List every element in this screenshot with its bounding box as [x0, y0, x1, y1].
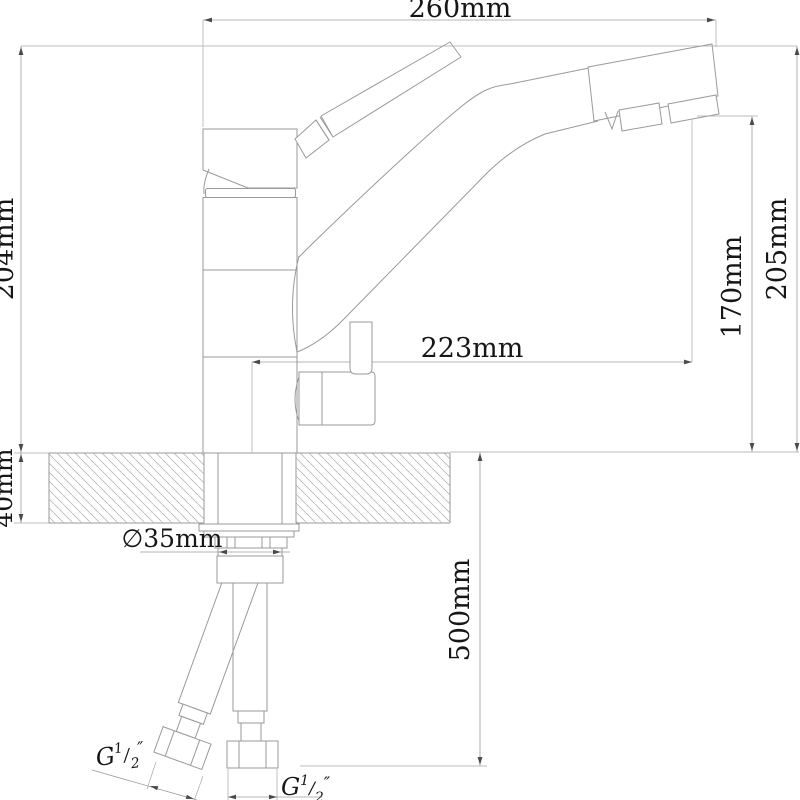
thread-left-text: G1/2″	[94, 737, 148, 777]
faucet-technical-drawing: 260mm 204mm 40mm 205mm 170mm 223mm	[0, 0, 800, 800]
filter-outlet	[295, 322, 375, 425]
hose-right-ferrule	[238, 711, 264, 723]
thread-right-text: G1/2″	[281, 773, 331, 800]
dim-label-hose-length: 500mm	[445, 559, 476, 662]
hose-right	[227, 570, 278, 768]
cartridge-head	[203, 129, 297, 188]
dim-label-height-to-top: 204mm	[0, 198, 20, 301]
dim-label-spout-tip-offset: 223mm	[421, 333, 524, 364]
shank-lock-nut	[217, 556, 283, 583]
thread-label-right: G1/2″	[228, 769, 331, 800]
outlet-box	[299, 372, 375, 425]
dim-label-deck-thickness: 40mm	[0, 448, 18, 528]
handle-lever	[321, 42, 461, 137]
hose-right-braid	[233, 570, 267, 711]
spout-lower-outline	[297, 121, 598, 352]
faucet	[203, 42, 719, 453]
spout-upper-outline	[299, 68, 589, 257]
countertop-hatch-left	[49, 453, 204, 523]
slotted-ring	[215, 537, 287, 548]
faucet-body-column	[203, 198, 297, 454]
hose-right-nut	[227, 741, 278, 768]
drawing-svg: 260mm 204mm 40mm 205mm 170mm 223mm	[0, 0, 800, 800]
dim-label-shank-diameter: ∅35mm	[121, 524, 222, 553]
handle-connector	[295, 120, 329, 158]
hose-left-braid	[178, 564, 260, 714]
dimension-outlet-height: 170mm	[697, 116, 758, 452]
outlet-knob	[350, 322, 372, 374]
supply-hoses	[154, 556, 283, 769]
countertop-hatch-right	[296, 453, 450, 523]
dim-label-outlet-height: 170mm	[717, 236, 748, 339]
dimension-deck-thickness: 40mm	[0, 448, 49, 528]
head-joint-band	[206, 189, 296, 198]
countertop-assembly	[49, 453, 450, 556]
dim-label-spout-reach: 260mm	[409, 0, 512, 24]
dim-label-overall-height: 205mm	[762, 198, 793, 301]
